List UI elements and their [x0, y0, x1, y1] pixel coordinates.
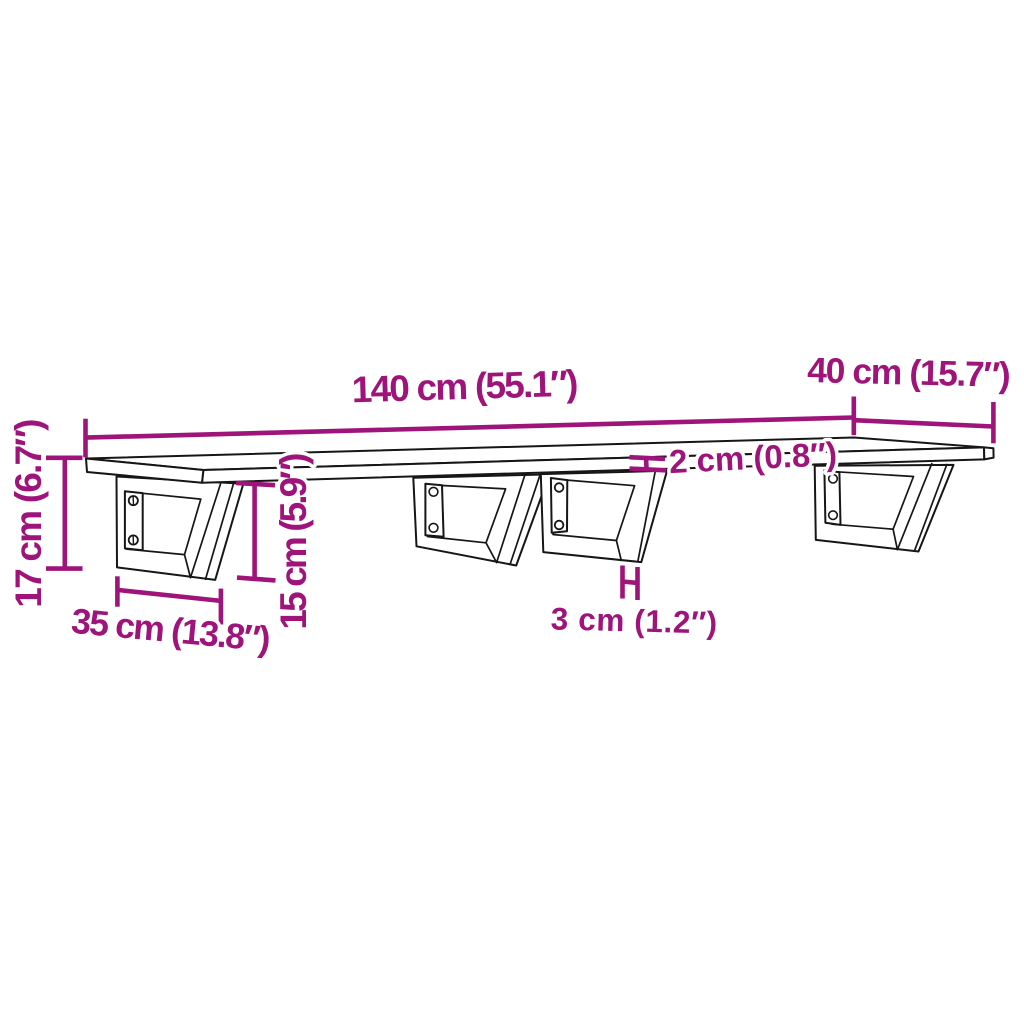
svg-text:17 cm (6.7″): 17 cm (6.7″): [8, 420, 49, 608]
svg-text:15 cm (5.9″): 15 cm (5.9″): [273, 454, 314, 630]
svg-text:3 cm (1.2″): 3 cm (1.2″): [550, 600, 718, 640]
svg-text:40 cm (15.7″): 40 cm (15.7″): [807, 350, 1011, 395]
svg-text:140 cm (55.1″): 140 cm (55.1″): [351, 363, 578, 411]
